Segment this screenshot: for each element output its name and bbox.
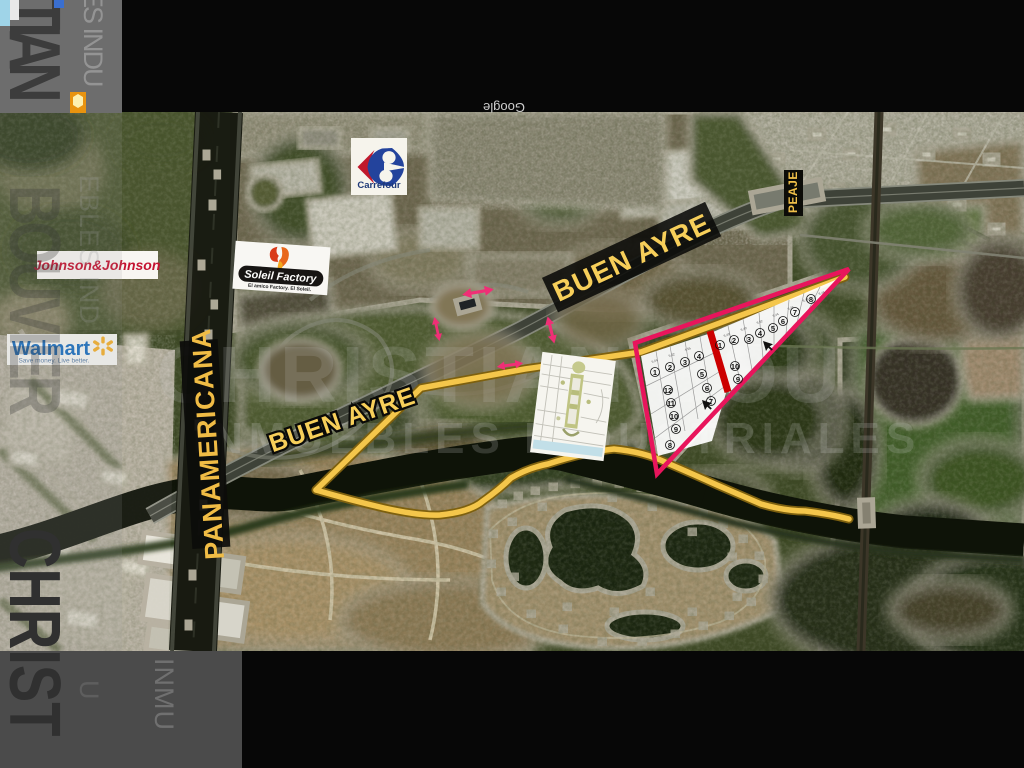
svg-text:3: 3 [683,358,687,367]
svg-text:Google: Google [483,100,525,115]
svg-text:9: 9 [736,375,740,384]
svg-text:8: 8 [668,441,672,450]
svg-text:3: 3 [747,335,751,344]
svg-text:1: 1 [718,341,722,350]
svg-text:11: 11 [667,399,675,408]
svg-text:10: 10 [731,362,739,371]
svg-text:5: 5 [700,370,704,379]
svg-text:10: 10 [670,412,678,421]
svg-text:1: 1 [653,368,657,377]
svg-text:7: 7 [793,308,797,317]
svg-text:6: 6 [781,317,785,326]
svg-text:6: 6 [705,384,709,393]
svg-text:INMU: INMU [149,658,179,731]
svg-text:U: U [74,680,104,701]
svg-text:8: 8 [809,295,813,304]
svg-text:2: 2 [668,363,672,372]
svg-text:2: 2 [732,336,736,345]
svg-text:5: 5 [771,324,775,333]
svg-text:CHRIST: CHRIST [0,528,76,736]
svg-text:9: 9 [674,425,678,434]
svg-text:12: 12 [664,386,672,395]
svg-text:Carrefour: Carrefour [357,180,401,191]
svg-text:PEAJE: PEAJE [786,171,800,213]
svg-text:ES INDU: ES INDU [78,0,108,86]
svg-text:BOUVIER: BOUVIER [0,185,76,415]
svg-text:EBLES IND: EBLES IND [74,175,104,325]
